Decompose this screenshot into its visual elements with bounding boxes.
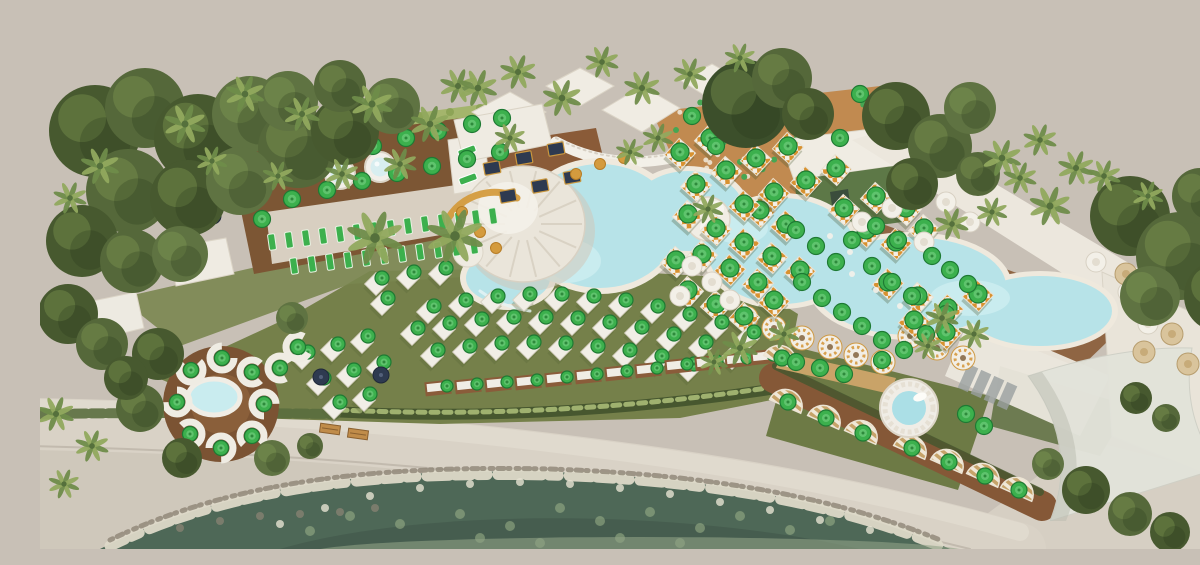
aerial-render-svg: [40, 16, 1200, 549]
beach-club-aerial-render: [40, 16, 1200, 549]
jacuzzi: [880, 379, 938, 437]
